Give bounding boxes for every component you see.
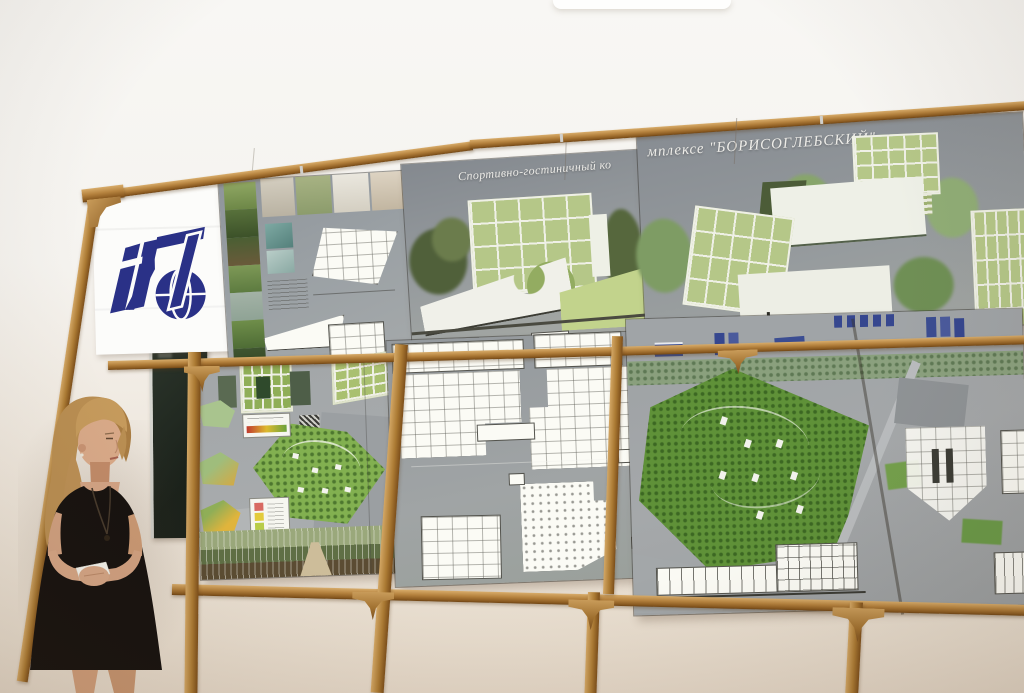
photo-tile	[232, 319, 266, 349]
logo-banner	[92, 187, 230, 354]
white-slab	[770, 176, 926, 248]
institute-logo-icon	[107, 214, 216, 335]
legend-gradient-bar	[247, 425, 287, 433]
mounting-clip	[560, 134, 564, 142]
photo-tile	[260, 177, 295, 217]
section-fragment	[995, 552, 1024, 593]
interior-photo	[265, 222, 293, 249]
blue-building	[834, 314, 898, 328]
legend-swatch	[254, 503, 263, 511]
elevation-slab	[290, 371, 311, 406]
green-patch	[961, 519, 1002, 545]
photo-tile	[332, 173, 370, 213]
hands	[79, 566, 109, 586]
plan-fragment	[510, 474, 524, 485]
photo-tile	[227, 236, 261, 266]
plan-fragment	[1001, 430, 1024, 493]
presenter-woman	[10, 388, 190, 693]
plan-corridor	[478, 424, 535, 441]
photo-tile	[230, 291, 264, 321]
section-drawing	[657, 565, 778, 594]
plan-overlay-core	[932, 449, 940, 483]
annotation-text	[267, 279, 309, 311]
thematic-map	[198, 451, 239, 486]
legend-swatch	[255, 513, 264, 521]
interior-photo	[266, 249, 294, 274]
nature-photo-strip	[223, 182, 266, 378]
project-title-part1: Спортивно-гостиничный ко	[457, 157, 612, 184]
ceiling-light	[553, 0, 731, 9]
floor-plan	[520, 480, 617, 572]
mounting-clip	[820, 116, 824, 124]
blue-building	[926, 317, 937, 337]
pendant	[104, 535, 110, 541]
board-render-collage: мплексе "БОРИСОГЛЕБСКИЙ"	[636, 112, 1024, 341]
section-drawing	[776, 543, 857, 591]
arm-right	[128, 514, 142, 556]
photo-tile	[228, 264, 262, 293]
green-grid-right	[970, 208, 1024, 313]
photo-tile	[223, 182, 257, 211]
floor-plan	[398, 370, 523, 459]
leg-left	[72, 670, 98, 693]
legend-gradient-box	[243, 414, 290, 438]
wood-bracket	[568, 599, 615, 630]
board-aerial-view	[626, 309, 1024, 616]
white-annex	[589, 214, 611, 277]
tree-blob	[892, 256, 954, 315]
project-title-part2: мплексе "БОРИСОГЛЕБСКИЙ"	[647, 130, 877, 161]
site-building-dot	[292, 453, 299, 459]
wood-bracket	[831, 607, 884, 643]
photo-tile	[295, 175, 332, 215]
board-main-render: Спортивно-гостиничный ко	[401, 150, 650, 358]
photo-stage: Спортивно-гостиничный ко мплексе "БОРИСО…	[0, 0, 1024, 693]
earring	[80, 453, 83, 456]
ear	[78, 444, 86, 452]
urban-patch	[894, 377, 969, 431]
plan-overlay	[905, 426, 988, 522]
leg-right	[108, 670, 136, 693]
legend-caption	[247, 417, 283, 422]
interior-render-strip	[260, 171, 408, 219]
elevation-dark-core	[256, 376, 271, 398]
dimension-line	[313, 289, 395, 295]
dimension-line	[426, 579, 606, 586]
photo-tile	[225, 209, 259, 239]
floor-plan	[422, 516, 501, 580]
floor-plan-triangle	[309, 215, 401, 288]
